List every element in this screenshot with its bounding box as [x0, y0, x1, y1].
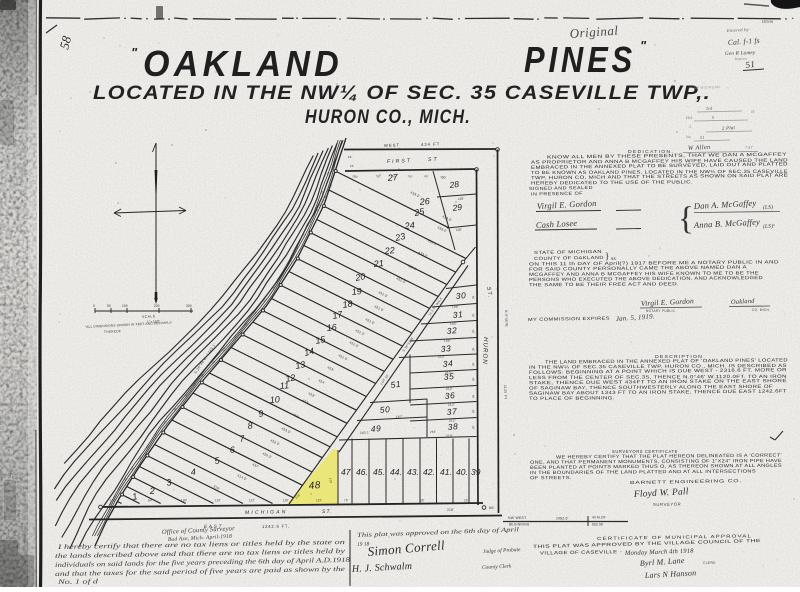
svg-text:FIRST: FIRST	[387, 158, 412, 165]
svg-text:Oct.: Oct.	[686, 115, 694, 120]
svg-text:213': 213'	[438, 355, 445, 359]
svg-text:212': 212'	[448, 403, 455, 407]
svg-text:43.: 43.	[407, 467, 419, 477]
svg-text:33: 33	[440, 343, 451, 354]
svg-text:193': 193'	[450, 322, 457, 326]
svg-text:10: 10	[269, 394, 280, 405]
svg-text:2: 2	[148, 486, 155, 496]
svg-text:66': 66'	[489, 506, 495, 510]
svg-text:100': 100'	[181, 498, 188, 502]
svg-text:75': 75'	[344, 498, 349, 502]
svg-text:41.: 41.	[440, 467, 452, 477]
svg-text:N.0°46'W.: N.0°46'W.	[504, 310, 509, 328]
svg-text:115': 115'	[283, 498, 290, 502]
svg-text:11: 11	[279, 380, 289, 391]
svg-text:40 M.OF: 40 M.OF	[592, 516, 606, 520]
svg-text:OAKLAND: OAKLAND	[143, 43, 343, 84]
svg-text:212': 212'	[445, 371, 452, 375]
svg-text:1062.6': 1062.6'	[556, 517, 569, 521]
svg-text:1120 FT: 1120 FT	[503, 385, 508, 400]
svg-text:203.1': 203.1'	[360, 430, 370, 435]
svg-text:No: No	[686, 135, 691, 139]
svg-text:........: ........	[700, 94, 710, 98]
svg-text:": "	[640, 38, 647, 53]
svg-text:4: 4	[190, 467, 196, 477]
svg-text:44.: 44.	[390, 467, 402, 477]
svg-text:}: }	[605, 251, 609, 261]
svg-text:51: 51	[390, 379, 402, 390]
svg-text:66: 66	[348, 155, 352, 159]
svg-text:ST: ST	[428, 157, 439, 163]
svg-text:PINES: PINES	[524, 39, 636, 80]
svg-text:34: 34	[442, 358, 453, 369]
svg-text:200: 200	[154, 304, 160, 308]
svg-text:39: 39	[471, 467, 481, 477]
svg-text:OF STREETS.: OF STREETS.	[530, 475, 572, 480]
svg-text:198': 198'	[452, 305, 459, 309]
svg-text:51: 51	[700, 135, 705, 140]
svg-text:ST.: ST.	[322, 509, 333, 515]
svg-text:50: 50	[107, 304, 111, 308]
svg-text:LOCATED IN THE NW¼ OF SEC. 35: LOCATED IN THE NW¼ OF SEC. 35 CASEVILLE …	[93, 82, 711, 104]
svg-text:CLERK: CLERK	[703, 561, 716, 565]
svg-text:(LS): (LS)	[763, 203, 774, 211]
svg-text:66: 66	[350, 164, 354, 168]
svg-text:.....: .....	[686, 104, 692, 108]
svg-text:36: 36	[444, 390, 455, 401]
svg-text:HURON: HURON	[481, 337, 489, 365]
svg-text:112': 112'	[249, 498, 256, 502]
svg-text:Oakland: Oakland	[731, 298, 756, 306]
svg-text:51: 51	[745, 59, 756, 70]
svg-text:SCALE: SCALE	[142, 314, 156, 319]
svg-text:49: 49	[370, 423, 381, 434]
svg-text:Olivia: Olivia	[762, 19, 774, 24]
svg-text:18: 18	[342, 298, 354, 310]
svg-text:NW WEST: NW WEST	[508, 516, 527, 520]
svg-text:6: 6	[229, 445, 235, 455]
svg-text:{: {	[678, 201, 694, 237]
svg-text:45.: 45.	[373, 467, 385, 477]
svg-text:26: 26	[418, 196, 430, 207]
svg-text:": "	[131, 45, 138, 60]
svg-text:300: 300	[186, 304, 192, 308]
svg-text:46.: 46.	[356, 467, 368, 477]
svg-text:1242.6 FT.: 1242.6 FT.	[262, 524, 290, 529]
svg-text:135': 135'	[456, 228, 463, 232]
svg-text:30: 30	[455, 290, 466, 301]
svg-text:No. 1 of d: No. 1 of d	[56, 578, 99, 586]
svg-text:CO. MICH.: CO. MICH.	[752, 308, 770, 312]
svg-text:22: 22	[383, 245, 395, 256]
svg-text:662.98: 662.98	[592, 523, 603, 527]
svg-text:48: 48	[308, 480, 321, 492]
svg-text:212': 212'	[449, 419, 456, 423]
svg-text:W Allen: W Allen	[688, 144, 711, 152]
svg-text:25': 25'	[464, 498, 469, 502]
svg-text:264': 264'	[430, 430, 437, 434]
svg-text:21: 21	[372, 258, 384, 269]
svg-text:7.57: 7.57	[745, 145, 754, 150]
svg-text:SURVEYOR: SURVEYOR	[653, 502, 681, 507]
svg-text:40.: 40.	[456, 467, 468, 477]
svg-text:167': 167'	[396, 415, 403, 419]
svg-text:218': 218'	[447, 508, 454, 512]
svg-text:IN PRESENCE OF: IN PRESENCE OF	[531, 191, 583, 197]
svg-text:11: 11	[751, 109, 755, 114]
svg-text:0: 0	[93, 304, 95, 308]
svg-text:32: 32	[446, 325, 457, 336]
svg-text:31: 31	[452, 309, 463, 320]
svg-text:198': 198'	[444, 339, 451, 343]
svg-text:HURON CO., MICH.: HURON CO., MICH.	[305, 106, 471, 128]
svg-text:13: 13	[294, 359, 306, 371]
svg-text:24: 24	[403, 220, 415, 231]
svg-text:WEST: WEST	[384, 142, 400, 148]
svg-text:85': 85'	[420, 498, 425, 502]
svg-text:(LS): (LS)	[763, 222, 774, 230]
svg-text:.2: .2	[688, 125, 691, 129]
svg-text:84': 84'	[148, 498, 153, 502]
svg-text:434 FT: 434 FT	[421, 141, 440, 147]
svg-text:47: 47	[341, 467, 351, 477]
svg-text:16: 16	[326, 322, 337, 333]
svg-text:19: 19	[351, 286, 362, 297]
svg-text:TO PLACE OF BEGINNING.: TO PLACE OF BEGINNING.	[529, 395, 615, 401]
svg-text:135': 135'	[458, 197, 465, 201]
svg-text:115': 115'	[215, 498, 222, 502]
svg-text:130': 130'	[110, 498, 117, 502]
svg-text:115': 115'	[316, 498, 323, 502]
svg-text:212': 212'	[446, 387, 453, 391]
svg-text:28: 28	[448, 179, 460, 190]
svg-text:37: 37	[446, 406, 457, 417]
svg-text:29: 29	[451, 202, 463, 213]
svg-text:100: 100	[122, 304, 128, 308]
svg-text:42.: 42.	[423, 467, 435, 477]
svg-text:THE SAME TO BE THEIR FREE ACT: THE SAME TO BE THEIR FREE ACT AND DEED.	[529, 281, 679, 287]
svg-text:50: 50	[379, 404, 390, 415]
svg-text:9: 9	[712, 115, 714, 120]
svg-text:MICHIGAN: MICHIGAN	[245, 509, 288, 516]
svg-text:3rd: 3rd	[706, 106, 713, 111]
